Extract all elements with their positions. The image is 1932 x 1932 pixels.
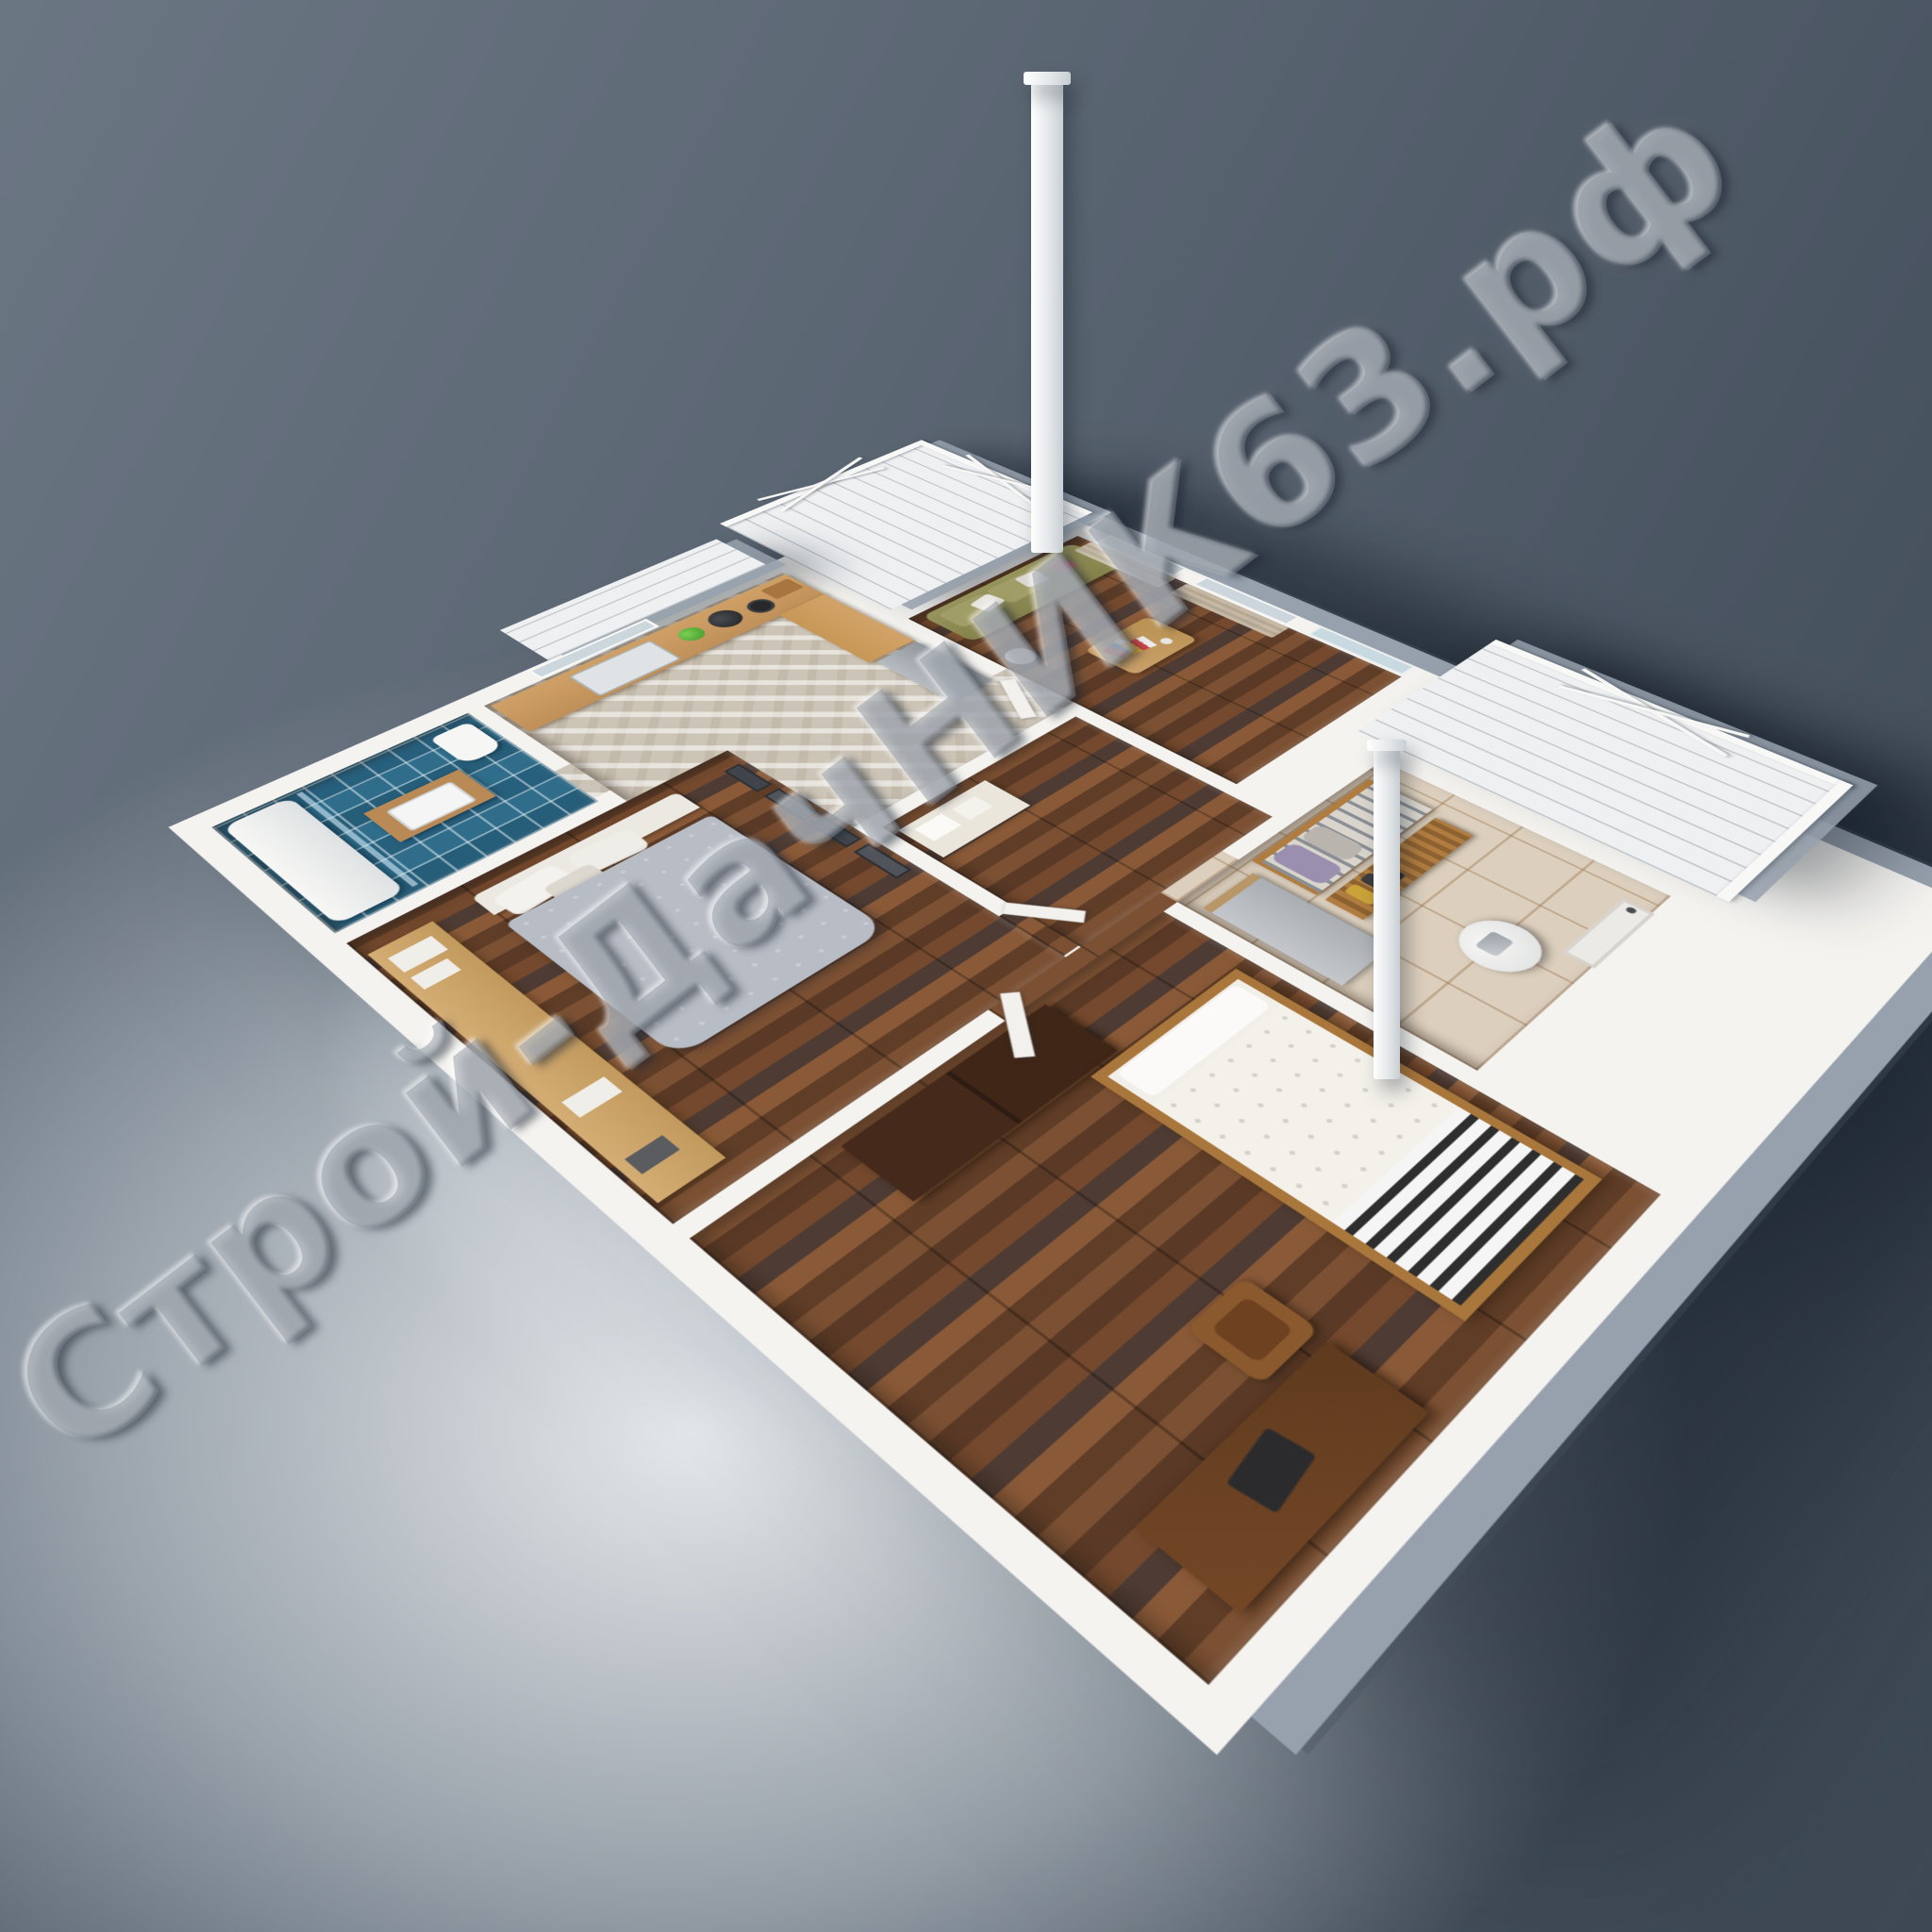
porch-post-cap xyxy=(1367,740,1407,751)
terrace-railing-right xyxy=(915,440,1092,515)
terrace-corner-post xyxy=(1031,81,1063,553)
terrace-post-cap xyxy=(1024,72,1071,85)
scene: Строй-ДачНИК63.рф xyxy=(0,0,1932,1932)
porch-corner-post xyxy=(1374,747,1400,1079)
